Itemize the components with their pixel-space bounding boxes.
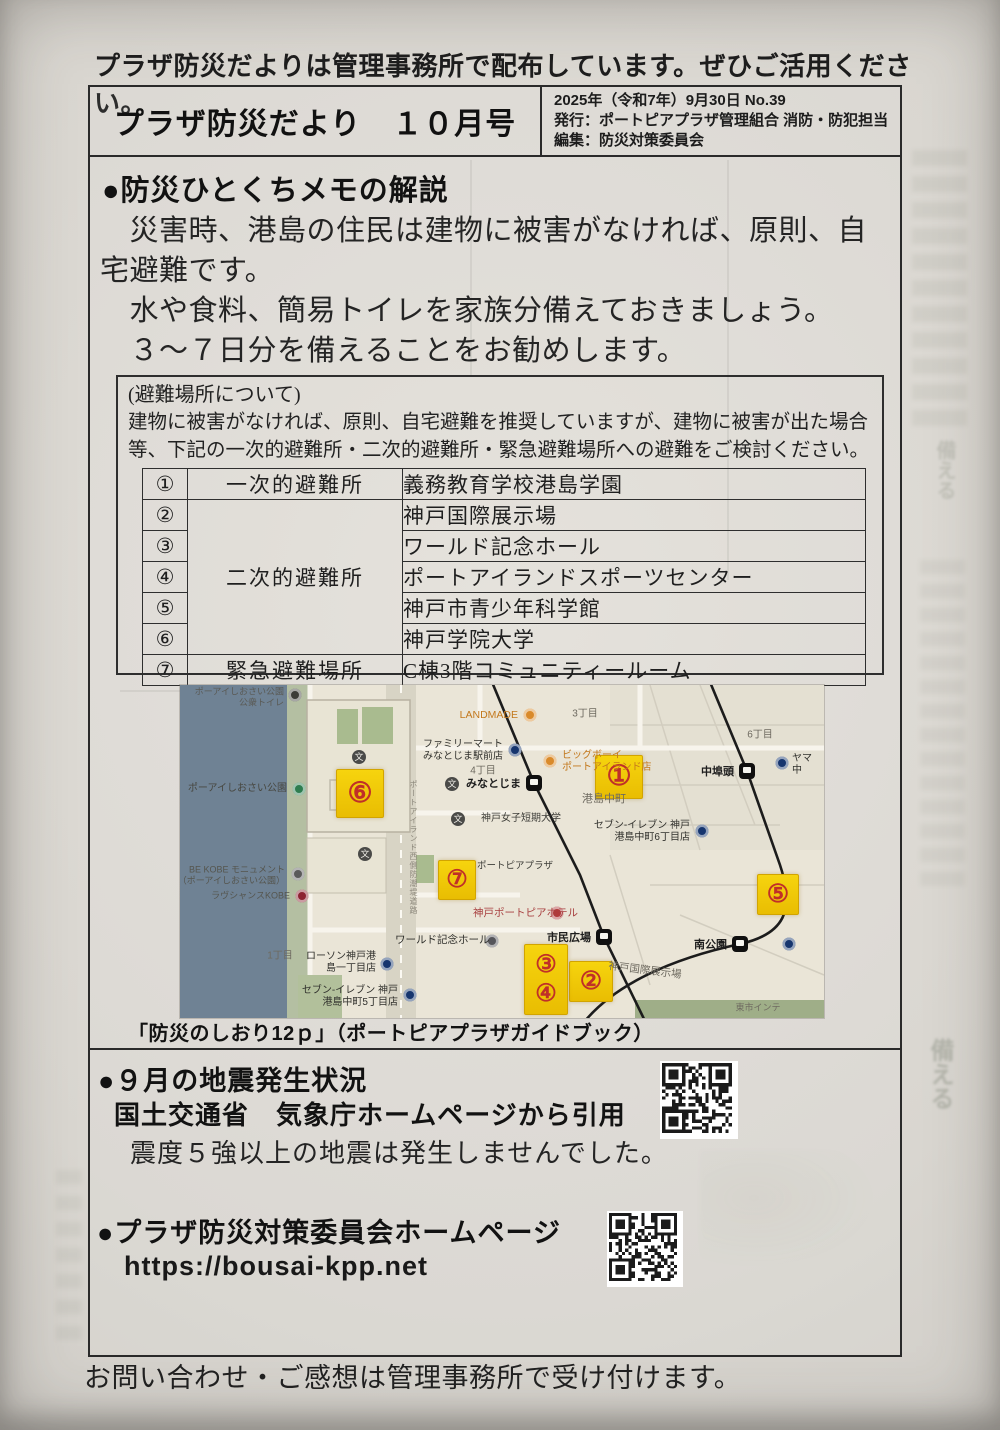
map-poi-label: ポーアイしおさい公園 — [188, 783, 287, 795]
memo-line: 宅避難です。 — [100, 251, 896, 291]
map-poi-dot — [404, 989, 417, 1002]
shelter-number: ⑤ — [143, 593, 188, 624]
shelter-description-line1: 建物に被害がなければ、原則、自宅避難を推奨していますが、建物に被害が出た場合 — [128, 409, 872, 437]
map-station-label: 南公園 — [694, 936, 727, 952]
map-poi-label: ビッグボーイ ポートアイランド店 — [562, 750, 652, 774]
earthquake-qr-code — [660, 1061, 738, 1139]
map-poi-label: セブン-イレブン 神戸 港島中町5丁目店 — [302, 985, 398, 1009]
map-station-label: みなとじま — [466, 775, 521, 791]
shelter-number: ③ — [143, 531, 188, 562]
map-station-icon: 中埠頭 — [739, 763, 755, 779]
map-area-label: 東市インテ — [735, 1001, 780, 1014]
map-poi-dot — [776, 757, 789, 770]
shelter-name: 神戸学院大学 — [403, 624, 866, 655]
shelter-name: 義務教育学校港島学園 — [403, 469, 866, 500]
map-poi-label: 神戸ポートピアホテル — [473, 907, 578, 919]
shelter-number: ⑦ — [143, 655, 188, 686]
map-poi-dot — [544, 755, 557, 768]
map-poi-label: セブン-イレブン 神戸 港島中町6丁目店 — [594, 820, 690, 844]
map-poi-label: ローソン神戸港 島一丁目店 — [306, 951, 376, 975]
shelter-category: 緊急避難場所 — [188, 655, 403, 686]
map-school-icon: 文 — [352, 750, 366, 764]
map-graphics — [180, 685, 824, 1018]
homepage-url: https://bousai-kpp.net — [124, 1251, 428, 1282]
earthquake-source: 国土交通省 気象庁ホームページから引用 — [114, 1095, 626, 1132]
map-caption: 「防災のしおり12ｐ」（ポートピアプラザガイドブック） — [128, 1017, 654, 1046]
section-divider — [88, 1048, 902, 1050]
table-row: ⑦ 緊急避難場所 C棟3階コミュニティールーム — [143, 655, 866, 686]
newsletter-header: プラザ防災だより １０月号 2025年（令和7年）9月30日 No.39 発行：… — [90, 87, 900, 157]
map-poi-label: BE KOBE モニュメント （ポーアイしおさい公園） — [180, 864, 285, 885]
shelter-name: 神戸国際展示場 — [403, 500, 866, 531]
map-station-icon: みなとじま — [526, 775, 542, 791]
earthquake-section-heading: ●９月の地震発生状況 — [98, 1059, 367, 1098]
map-station-icon: 南公園 — [732, 936, 748, 952]
newsletter-photo: { "top_note": "プラザ防災だよりは管理事務所で配布しています。ぜひ… — [0, 0, 1000, 1430]
map-poi-dot — [289, 689, 302, 702]
table-row: ② 二次的避難所 神戸国際展示場 — [143, 500, 866, 531]
shelter-table: ① 一次的避難所 義務教育学校港島学園 ② 二次的避難所 神戸国際展示場 ③ ワ… — [142, 468, 866, 686]
shelter-name: 神戸市青少年科学館 — [403, 593, 866, 624]
shelter-name: C棟3階コミュニティールーム — [403, 655, 866, 686]
ghost-bleed-text: 備える — [922, 1038, 957, 1110]
memo-line: 災害時、港島の住民は建物に被害がなければ、原則、自 — [100, 211, 896, 251]
map-marker-3: ③ ④ — [524, 944, 568, 1015]
map-station-label: 中埠頭 — [701, 763, 734, 779]
map-school-icon: 文 — [358, 847, 372, 861]
map-poi-label: 神戸女子短期大学 — [481, 813, 561, 825]
map-poi-dot — [296, 890, 309, 903]
publication-date: 2025年（令和7年）9月30日 No.39 — [554, 91, 890, 111]
map-station-icon: 市民広場 — [596, 929, 612, 945]
map-poi-dot — [509, 744, 522, 757]
shelter-number: ⑥ — [143, 624, 188, 655]
newsletter-title: プラザ防災だより １０月号 — [90, 87, 542, 155]
publication-info: 2025年（令和7年）9月30日 No.39 発行：ポートピアプラザ管理組合 消… — [542, 87, 900, 155]
evacuation-map: ①②③ ④⑤⑥⑦みなとじま市民広場南公園中埠頭ポーアイしおさい公園 公衆トイレポ… — [180, 685, 824, 1018]
map-poi-label: LANDMADE — [460, 709, 518, 721]
memo-line: 水や食料、簡易トイレを家族分備えておきましょう。 — [100, 291, 896, 331]
shelter-name: ポートアイランドスポーツセンター — [403, 562, 866, 593]
editor: 編集：防災対策委員会 — [554, 131, 890, 151]
map-school-icon: 文 — [451, 812, 465, 826]
map-marker-4: ⑤ — [757, 874, 799, 915]
homepage-qr-code — [607, 1211, 683, 1287]
shelter-number: ② — [143, 500, 188, 531]
ghost-bleed-text: 備える — [930, 440, 959, 500]
shelter-category: 二次的避難所 — [188, 500, 403, 655]
map-poi-label: ポーアイしおさい公園 公衆トイレ — [195, 686, 284, 707]
map-poi-dot — [293, 783, 306, 796]
shelter-name: ワールド記念ホール — [403, 531, 866, 562]
map-road-label: ポートアイランド西側防潮堤道路 — [408, 780, 419, 950]
map-poi-dot — [696, 825, 709, 838]
ghost-smudge — [920, 560, 965, 890]
homepage-section-heading: ●プラザ防災対策委員会ホームページ — [97, 1211, 561, 1250]
map-poi-label: ファミリーマート みなとじま駅前店 — [423, 739, 503, 763]
shelter-number: ④ — [143, 562, 188, 593]
map-station-label: 市民広場 — [547, 929, 591, 945]
earthquake-result: 震度５強以上の地震は発生しませんでした。 — [130, 1133, 668, 1170]
map-poi-label: ラヴシャンスKOBE — [211, 891, 290, 902]
shelter-number: ① — [143, 469, 188, 500]
table-row: ① 一次的避難所 義務教育学校港島学園 — [143, 469, 866, 500]
memo-line: ３～７日分を備えることをお勧めします。 — [100, 331, 896, 371]
map-area-label: 4丁目 — [470, 762, 496, 777]
map-marker-6: ⑦ — [438, 860, 476, 900]
publisher: 発行：ポートピアプラザ管理組合 消防・防犯担当 — [554, 111, 890, 131]
shelter-category: 一次的避難所 — [188, 469, 403, 500]
memo-section-heading: ●防災ひとくちメモの解説 — [102, 167, 449, 209]
map-poi-dot — [524, 709, 537, 722]
ghost-smudge — [912, 150, 967, 430]
shelter-description-line2: 等、下記の一次的避難所・二次的避難所・緊急避難場所への避難をご検討ください。 — [128, 437, 872, 465]
map-school-icon: 文 — [445, 777, 459, 791]
contact-note: お問い合わせ・ご感想は管理事務所で受け付けます。 — [84, 1356, 741, 1395]
shelter-box-title: (避難場所について) — [128, 382, 872, 409]
map-area-label: 3丁目 — [572, 705, 598, 720]
shelter-info-box: (避難場所について) 建物に被害がなければ、原則、自宅避難を推奨していますが、建… — [116, 375, 884, 675]
map-poi-dot — [381, 958, 394, 971]
map-area-label: 港島中町 — [582, 790, 626, 806]
map-poi-label: ヤマ 中 — [792, 753, 812, 777]
map-marker-5: ⑥ — [336, 769, 384, 818]
map-marker-2: ② — [569, 961, 613, 1002]
map-poi-dot — [292, 868, 305, 881]
ghost-smudge — [56, 1170, 82, 1340]
map-area-label: 6丁目 — [747, 726, 773, 741]
newsletter-body: プラザ防災だより １０月号 2025年（令和7年）9月30日 No.39 発行：… — [88, 85, 902, 1357]
memo-paragraphs: 災害時、港島の住民は建物に被害がなければ、原則、自 宅避難です。 水や食料、簡易… — [100, 211, 896, 371]
map-poi-dot — [783, 938, 796, 951]
map-poi-label: ポートピアプラザ — [477, 860, 553, 871]
map-area-label: 1丁目 — [267, 947, 293, 962]
